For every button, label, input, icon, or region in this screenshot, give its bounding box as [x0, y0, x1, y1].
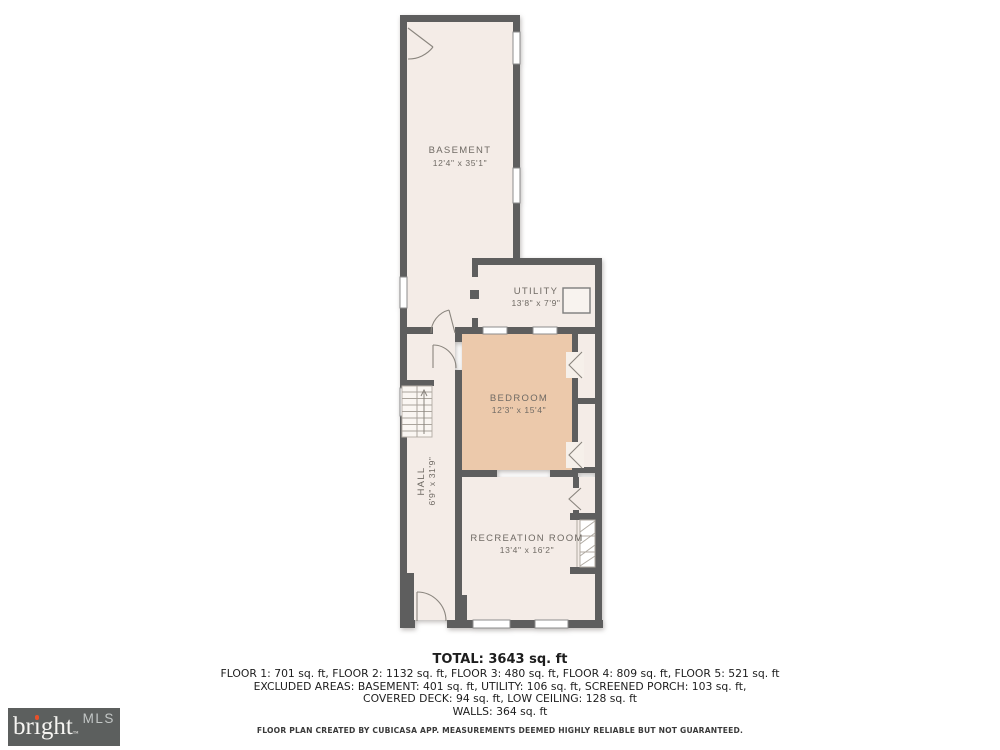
floor-plan-drawing: BASEMENT 12'4" x 35'1" UTILITY 13'8" x 7…: [0, 0, 1000, 650]
wall-segment: [572, 334, 578, 352]
bedroom-dims: 12'3" x 15'4": [492, 405, 546, 415]
wall-segment: [400, 15, 520, 22]
hall-dims: 6'9" x 31'9": [427, 456, 437, 505]
logo-trademark: ™: [73, 731, 79, 737]
wall-segment: [455, 327, 602, 334]
wall-segment: [510, 620, 535, 628]
wall-segment: [400, 15, 407, 622]
window: [513, 168, 520, 203]
wall-segment: [568, 620, 603, 628]
window: [483, 327, 507, 334]
disclaimer-text: FLOOR PLAN CREATED BY CUBICASA APP. MEAS…: [0, 726, 1000, 735]
window: [473, 620, 510, 628]
wall-segment: [462, 470, 497, 477]
wall-segment: [573, 477, 579, 488]
utility-dims: 13'8" x 7'9": [511, 298, 560, 308]
logo-mls-text: MLS: [83, 700, 115, 738]
wall-segment: [455, 327, 462, 342]
staircase-left: [402, 386, 432, 437]
bedroom-label: BEDROOM: [490, 393, 548, 404]
window: [533, 327, 557, 334]
wall-segment: [572, 398, 602, 404]
wall-segment: [472, 265, 478, 277]
utility-label: UTILITY: [514, 286, 558, 297]
recreation-room-label: RECREATION ROOM: [470, 533, 583, 544]
window: [513, 32, 520, 64]
wall-segment: [470, 290, 479, 299]
basement-label: BASEMENT: [429, 145, 492, 156]
wall-segment: [460, 595, 467, 622]
logo-orange-dot-icon: [35, 715, 40, 720]
room-fills: [407, 22, 595, 620]
water-heater-icon: [563, 288, 590, 313]
wall-segment: [400, 380, 434, 386]
area-summary: TOTAL: 3643 sq. ft FLOOR 1: 701 sq. ft, …: [0, 652, 1000, 718]
excluded-areas-2: COVERED DECK: 94 sq. ft, LOW CEILING: 12…: [0, 693, 1000, 706]
wall-segment: [550, 470, 578, 477]
recreation-room-dims: 13'4" x 16'2": [500, 545, 554, 555]
floor-plan-page: BASEMENT 12'4" x 35'1" UTILITY 13'8" x 7…: [0, 0, 1000, 750]
bright-mls-logo: brıght™ MLS: [8, 708, 120, 746]
floor-areas: FLOOR 1: 701 sq. ft, FLOOR 2: 1132 sq. f…: [0, 668, 1000, 681]
hall-label: HALL: [416, 467, 427, 496]
wall-segment: [570, 513, 598, 520]
logo-i-letter: ı: [34, 708, 41, 746]
window: [400, 277, 407, 308]
total-area: TOTAL: 3643 sq. ft: [0, 652, 1000, 667]
window: [535, 620, 568, 628]
wall-segment: [570, 567, 598, 574]
wall-segment: [455, 370, 462, 622]
walls-area: WALLS: 364 sq. ft: [0, 706, 1000, 719]
wall-segment: [572, 378, 578, 442]
wall-segment: [472, 258, 602, 265]
logo-brand-text: brıght™: [13, 708, 79, 746]
chimney-wall-block: [400, 573, 414, 622]
basement-dims: 12'4" x 35'1": [433, 158, 487, 168]
wall-segment: [400, 327, 433, 334]
